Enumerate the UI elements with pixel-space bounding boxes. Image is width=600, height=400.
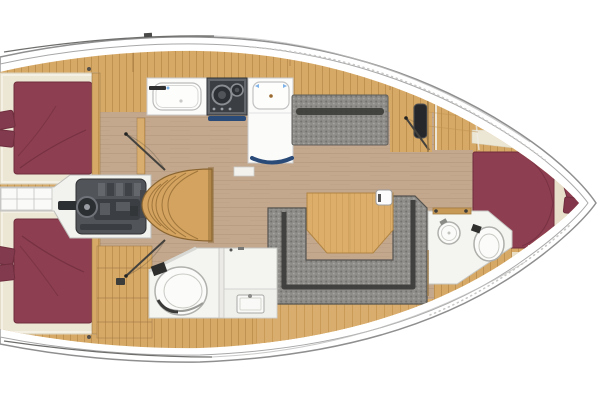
oven-handle (208, 116, 246, 121)
faucet (149, 86, 166, 90)
pillow (0, 245, 15, 266)
stove (207, 78, 247, 121)
floorplan-image (0, 0, 600, 400)
sink-drain (179, 99, 182, 102)
pillow (0, 129, 15, 148)
deck-fitting (87, 335, 91, 339)
deck-fitting (87, 67, 91, 71)
track-car (144, 33, 152, 38)
faucet-mark (167, 87, 170, 90)
shower-faucet (248, 294, 252, 298)
side-settee (292, 95, 388, 145)
cup-handle (378, 194, 381, 202)
lid-latch (269, 94, 273, 98)
pillow (0, 110, 15, 131)
aft-cabin-port (0, 73, 100, 184)
head-divider (219, 248, 224, 318)
fridge (248, 78, 293, 163)
storage-drawers (1, 188, 52, 210)
cabin-wall (92, 73, 100, 184)
basin-drain (448, 232, 451, 235)
pillow (0, 264, 15, 283)
yacht-floorplan (0, 0, 600, 400)
floor-hatch (234, 167, 254, 176)
door-handle (464, 209, 468, 213)
salon-table (307, 190, 393, 253)
door-handle (434, 209, 438, 213)
door-hinge (238, 247, 244, 250)
berth-port (14, 82, 92, 174)
door-handle (230, 249, 233, 252)
cabinet-latch (116, 278, 125, 285)
settee-cushion-crease (296, 108, 384, 115)
